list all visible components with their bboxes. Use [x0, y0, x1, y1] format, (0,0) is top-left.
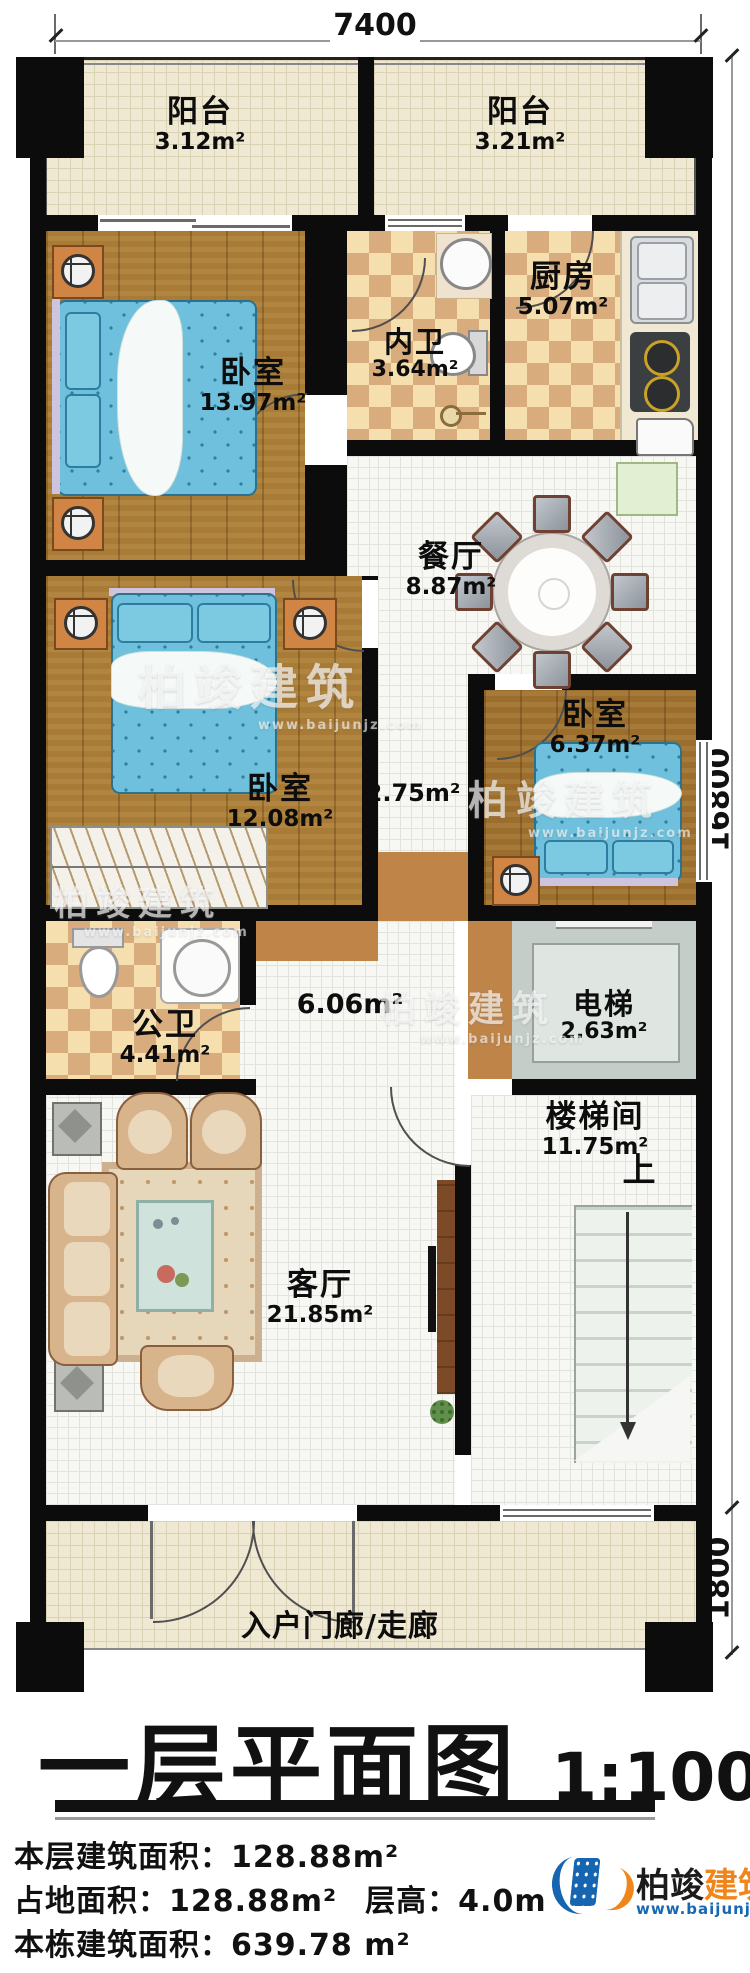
armchair [190, 1092, 262, 1170]
room-label-public-bathroom: 公卫 4.41m² [100, 1008, 230, 1068]
balcony-slider-opening [98, 215, 292, 231]
table-decor [153, 1219, 163, 1229]
floor-drain-line [456, 412, 486, 415]
wardrobe-rail [52, 866, 266, 868]
wall [347, 440, 490, 456]
lamp-icon [64, 606, 98, 640]
tv-icon [428, 1246, 436, 1332]
table-decor [171, 1217, 179, 1225]
room-label-living: 客厅 21.85m² [250, 1268, 390, 1328]
dining-floor [347, 456, 378, 576]
room-name: 阳台 [120, 95, 280, 130]
dining-chair [611, 573, 649, 611]
sink-icon [440, 238, 492, 290]
armchair-cushion [202, 1110, 246, 1154]
porch-edge-line [46, 1648, 696, 1650]
stairs-cut [574, 1376, 690, 1461]
room-label-corridor: 2.75m² [363, 780, 463, 807]
fridge-icon [636, 418, 694, 456]
room-area: 21.85m² [250, 1303, 390, 1329]
room-area: 6.37m² [520, 733, 670, 759]
info-label: 本栋建筑面积： [14, 1928, 231, 1963]
company-logo: 柏竣建筑 www.baijunjz.com [552, 1850, 742, 1934]
room-area: 3.64m² [365, 358, 465, 383]
cabinet [616, 462, 678, 516]
wall [362, 576, 378, 580]
wall [512, 1079, 696, 1095]
wall [562, 674, 696, 690]
tv-cabinet [437, 1180, 455, 1394]
room-area: 8.87m² [386, 575, 516, 601]
info-value: 639.78 m² [231, 1928, 411, 1963]
headboard [534, 878, 678, 886]
room-name: 卧室 [168, 356, 338, 391]
room-area: 5.07m² [498, 295, 628, 321]
room-name: 入户门廊/走廊 [180, 1610, 500, 1644]
pillar [16, 1622, 84, 1692]
pillow [544, 840, 608, 874]
wall [468, 674, 484, 921]
threshold [240, 921, 378, 961]
table-decor [157, 1265, 175, 1283]
room-label-balcony-left: 阳台 3.12m² [120, 95, 280, 155]
window-line [503, 1509, 651, 1511]
room-name: 阳台 [440, 95, 600, 130]
end-table-top [58, 1109, 92, 1143]
sofa-cushion [64, 1242, 110, 1296]
lamp-icon [61, 506, 95, 540]
wall [30, 158, 46, 1622]
kitchen-door-opening [508, 215, 592, 231]
dining-chair [533, 651, 571, 689]
wall [46, 560, 305, 576]
room-area: 2.63m² [542, 1020, 666, 1045]
sofa-cushion [64, 1182, 110, 1236]
room-name: 卧室 [195, 772, 365, 807]
armchair [116, 1092, 188, 1170]
stairs-arrow-line [626, 1212, 629, 1424]
info-value: 128.88m² [231, 1840, 399, 1875]
pillar [16, 57, 84, 158]
wardrobe [50, 826, 268, 909]
bed [534, 742, 682, 882]
pillar [645, 1622, 713, 1692]
window-line [388, 225, 462, 227]
end-table [52, 1102, 102, 1156]
coffee-table [136, 1200, 214, 1312]
wall [455, 1165, 471, 1455]
plant-icon [430, 1400, 454, 1424]
bed-sheet-fold [111, 651, 277, 709]
room-name: 电梯 [542, 988, 666, 1020]
room-label-bedroom-top: 卧室 13.97m² [168, 356, 338, 416]
title-underline-shadow [55, 1817, 655, 1820]
lamp-icon [500, 864, 532, 896]
info-label: 占地面积： [14, 1884, 169, 1919]
stairs-up-label: 上 [610, 1152, 670, 1189]
room-label-bedroom-right: 卧室 6.37m² [520, 698, 670, 758]
sink-basin [637, 242, 687, 280]
floor-plan-page: 7400 16800 1800 阳台 3.12m² 阳台 3.21m² [0, 0, 750, 1973]
pillow [197, 603, 271, 643]
nightstand [283, 598, 337, 650]
title-underline [55, 1800, 655, 1812]
info-value: 4.0m [458, 1884, 546, 1919]
wall [468, 905, 696, 921]
threshold [468, 921, 512, 1079]
direction-text: 上 [610, 1152, 670, 1189]
nightstand [52, 497, 104, 551]
room-label-hallway: 6.06m² [290, 990, 410, 1020]
room-label-elevator: 电梯 2.63m² [542, 988, 666, 1045]
info-line-2: 占地面积：128.88m²层高：4.0m [14, 1876, 547, 1920]
end-table-top [60, 1366, 94, 1400]
window-line [699, 742, 701, 880]
armchair-cushion [128, 1110, 172, 1154]
room-name: 公卫 [100, 1008, 230, 1043]
room-name: 内卫 [365, 326, 465, 358]
sink-basin [637, 282, 687, 320]
dimension-top-label: 7400 [330, 8, 420, 43]
room-area: 3.21m² [440, 130, 600, 156]
dining-chair [533, 495, 571, 533]
info-line-1: 本层建筑面积：128.88m² [14, 1832, 399, 1876]
nightstand [54, 598, 108, 650]
room-label-balcony-right: 阳台 3.21m² [440, 95, 600, 155]
room-name: 楼梯间 [512, 1100, 678, 1135]
pillow [65, 312, 101, 390]
kitchen-sink-icon [630, 236, 694, 324]
sliding-door-line [192, 225, 290, 228]
sink-counter [160, 928, 240, 1004]
burner-icon [644, 340, 680, 376]
room-label-dining: 餐厅 8.87m² [386, 540, 516, 600]
lamp-icon [61, 254, 95, 288]
headboard [52, 298, 60, 494]
room-label-entry-porch: 入户门廊/走廊 [180, 1610, 500, 1644]
room-name: 餐厅 [386, 540, 516, 575]
threshold [378, 852, 468, 921]
info-label: 层高： [365, 1884, 458, 1919]
logo-website: www.baijunjz.com [636, 1900, 750, 1918]
pillar [645, 57, 713, 158]
wall [484, 674, 495, 690]
room-area: 6.06m² [290, 990, 410, 1020]
stove-icon [630, 332, 690, 412]
dining-table-center [538, 578, 570, 610]
end-table [54, 1360, 104, 1412]
pillow [612, 840, 674, 874]
room-name: 客厅 [250, 1268, 390, 1303]
room-label-bedroom-middle: 卧室 12.08m² [195, 772, 365, 832]
room-area: 4.41m² [100, 1043, 230, 1069]
info-value: 128.88m² [169, 1884, 337, 1919]
info-label: 本层建筑面积： [14, 1840, 231, 1875]
table-decor [175, 1273, 189, 1287]
room-name: 卧室 [520, 698, 670, 733]
room-area: 3.12m² [120, 130, 280, 156]
info-line-3: 本栋建筑面积：639.78 m² [14, 1920, 411, 1964]
room-area: 12.08m² [195, 807, 365, 833]
entry-door-opening [148, 1505, 357, 1521]
bed [111, 593, 277, 794]
burner-icon [644, 376, 680, 412]
nightstand [492, 856, 540, 906]
wall [696, 158, 712, 1622]
elevator-door [556, 921, 652, 929]
wall [305, 465, 347, 576]
room-area: 13.97m² [168, 391, 338, 417]
armchair [140, 1345, 234, 1411]
room-name: 厨房 [498, 260, 628, 295]
toilet-tank [72, 928, 124, 948]
sofa [48, 1172, 118, 1366]
nightstand [52, 245, 104, 299]
floor-drain-icon [440, 405, 462, 427]
armchair-cushion [158, 1355, 214, 1397]
window-line [503, 1515, 651, 1517]
window-line [706, 742, 708, 880]
room-area: 2.75m² [363, 780, 463, 807]
sink-icon [173, 939, 231, 997]
sliding-door-line [100, 219, 196, 222]
window [385, 215, 465, 231]
stairs-arrow-icon [620, 1422, 636, 1440]
pillow [65, 394, 101, 468]
sofa-cushion [64, 1302, 110, 1356]
lamp-icon [293, 606, 327, 640]
wall [240, 921, 256, 1005]
wall [358, 57, 374, 215]
window [500, 1505, 654, 1521]
bed-sheet-fold [534, 772, 682, 818]
room-label-kitchen: 厨房 5.07m² [498, 260, 628, 320]
pillow [117, 603, 193, 643]
room-label-inner-bathroom: 内卫 3.64m² [365, 326, 465, 383]
wall [490, 215, 505, 456]
window-line [388, 219, 462, 221]
